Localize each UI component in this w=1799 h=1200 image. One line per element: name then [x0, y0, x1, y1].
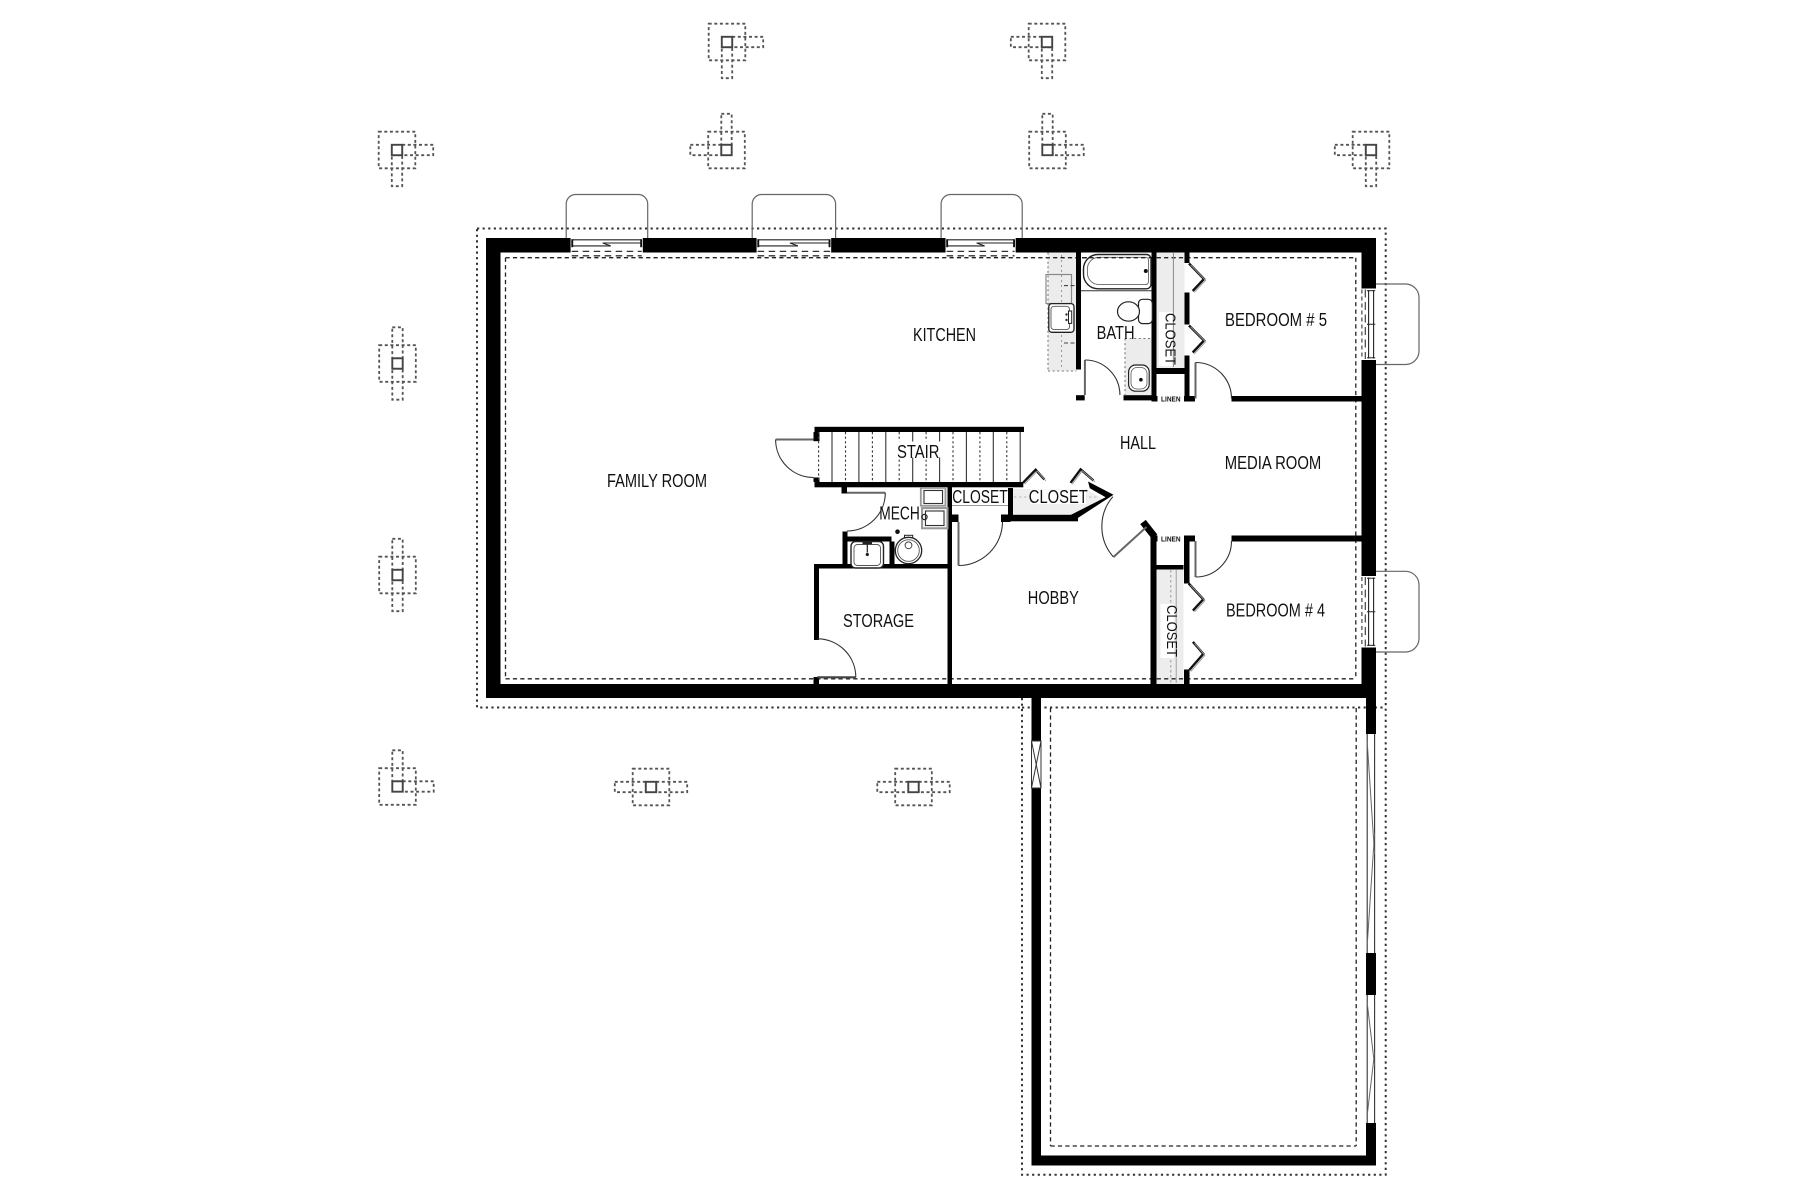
- svg-text:LINEN: LINEN: [1161, 534, 1181, 543]
- svg-text:HALL: HALL: [1120, 433, 1156, 453]
- svg-text:KITCHEN: KITCHEN: [913, 325, 976, 345]
- svg-text:MEDIA ROOM: MEDIA ROOM: [1225, 453, 1322, 473]
- svg-text:BATH: BATH: [1097, 323, 1135, 343]
- svg-text:MECH: MECH: [879, 504, 920, 524]
- svg-text:CLOSET: CLOSET: [952, 487, 1008, 507]
- svg-text:STORAGE: STORAGE: [843, 611, 914, 631]
- svg-text:HOBBY: HOBBY: [1028, 588, 1079, 608]
- svg-text:FAMILY ROOM: FAMILY ROOM: [607, 471, 707, 491]
- svg-text:BEDROOM # 4: BEDROOM # 4: [1226, 601, 1325, 621]
- svg-text:CLOSET: CLOSET: [1162, 313, 1179, 365]
- svg-text:CLOSET: CLOSET: [1029, 487, 1088, 507]
- svg-text:LINEN: LINEN: [1161, 394, 1181, 403]
- svg-text:STAIR: STAIR: [897, 442, 940, 462]
- svg-text:CLOSET: CLOSET: [1163, 605, 1180, 657]
- svg-text:BEDROOM # 5: BEDROOM # 5: [1225, 310, 1327, 330]
